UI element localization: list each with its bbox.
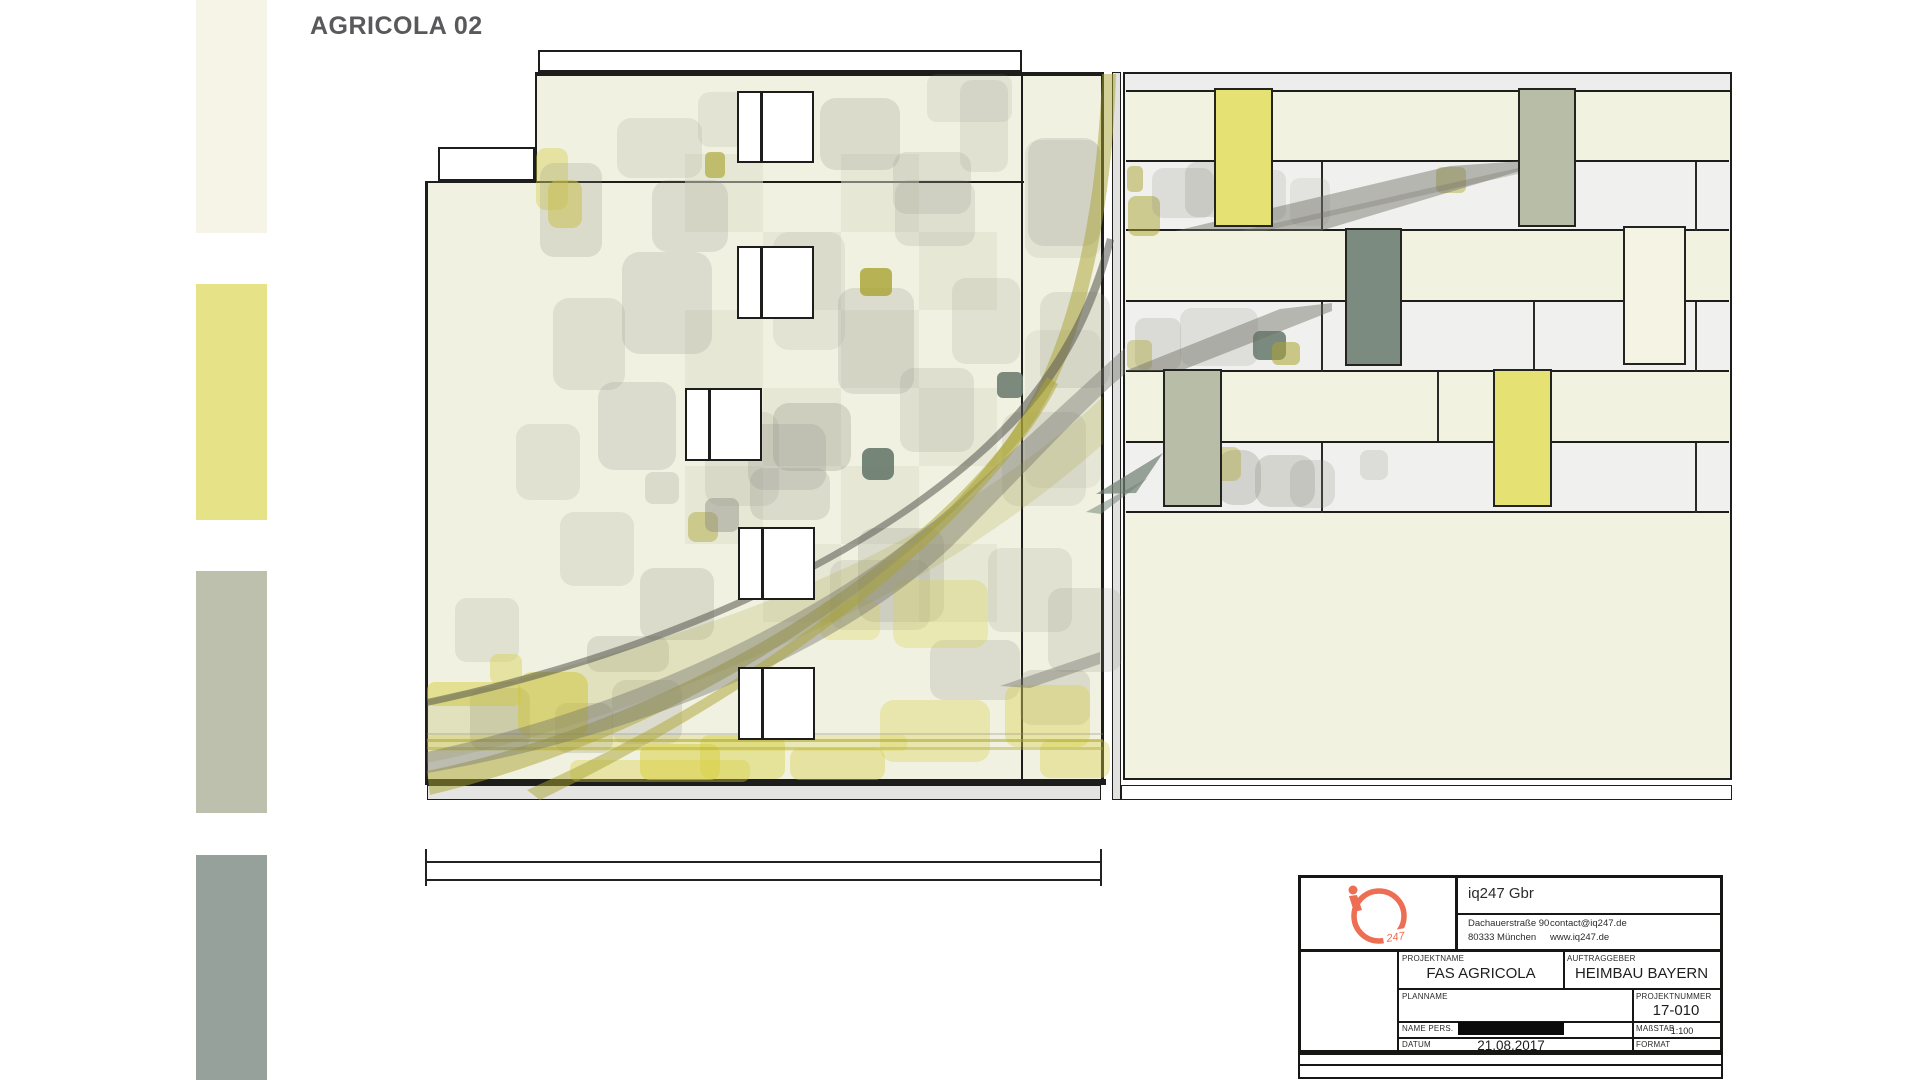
- iq247-logo: 247: [1303, 880, 1453, 946]
- art-patch: [1040, 740, 1110, 778]
- structure-rect: [1100, 849, 1102, 886]
- art-patch: [895, 180, 975, 246]
- art-patch: [652, 180, 728, 252]
- field-value-projektnummer: 17-010: [1632, 1002, 1720, 1019]
- facade-window: [737, 91, 814, 163]
- art-patch: [1290, 460, 1335, 508]
- art-patch: [427, 682, 521, 706]
- accent-board: [1623, 226, 1686, 365]
- art-patch: [893, 580, 988, 648]
- company-name: iq247 Gbr: [1468, 885, 1534, 902]
- divider: [1632, 990, 1634, 1050]
- window-mullion: [708, 390, 711, 459]
- structure-rect: [425, 849, 427, 886]
- art-patch: [587, 636, 669, 672]
- art-patch: [1360, 450, 1388, 480]
- structure-rect: [538, 50, 1022, 72]
- window-mullion: [761, 529, 764, 598]
- structure-rect: [1533, 302, 1535, 372]
- divider: [1455, 913, 1720, 915]
- field-label-format: FORMAT: [1636, 1040, 1670, 1049]
- redacted-name: [1458, 1022, 1564, 1035]
- accent-board: [1493, 369, 1552, 507]
- art-patch: [1048, 588, 1122, 672]
- structure-rect: [1101, 72, 1104, 779]
- structure-rect: [1695, 443, 1697, 513]
- window-mullion: [761, 669, 764, 738]
- art-patch: [645, 472, 679, 504]
- address-website: www.iq247.de: [1550, 932, 1609, 943]
- accent-board: [1518, 88, 1576, 227]
- structure-rect: [427, 785, 1101, 800]
- logo-247-text: 247: [1385, 930, 1407, 945]
- field-label-projektnummer: PROJEKTNUMMER: [1636, 992, 1712, 1001]
- art-patch: [570, 760, 750, 782]
- window-mullion: [760, 93, 763, 161]
- field-value-datum: 21.08.2017: [1397, 1038, 1625, 1053]
- structure-rect: [427, 879, 1102, 881]
- title-block-spare-row: [1298, 1064, 1723, 1079]
- art-patch: [1436, 167, 1466, 193]
- structure-rect: [438, 147, 535, 181]
- art-patch: [516, 424, 580, 500]
- art-patch: [455, 598, 519, 662]
- structure-rect: [427, 861, 1102, 863]
- structure-rect: [1121, 785, 1732, 800]
- accent-board: [1345, 228, 1402, 366]
- art-patch: [862, 448, 894, 480]
- field-value-auftraggeber: HEIMBAU BAYERN: [1563, 965, 1720, 982]
- art-patch: [705, 498, 739, 532]
- art-patch: [598, 382, 676, 470]
- art-patch: [617, 118, 702, 178]
- structure-rect: [1112, 72, 1121, 800]
- art-patch: [622, 252, 712, 354]
- facade-window: [738, 667, 815, 740]
- art-patch: [1127, 166, 1143, 192]
- address-street: Dachauerstraße 90: [1468, 918, 1549, 929]
- field-value-masstab: 1:100: [1667, 1026, 1697, 1036]
- art-patch: [640, 568, 714, 640]
- art-patch: [705, 152, 725, 178]
- structure-rect: [1695, 162, 1697, 231]
- art-patch: [750, 468, 830, 520]
- art-patch: [952, 278, 1020, 364]
- art-patch: [997, 372, 1023, 398]
- art-patch: [540, 163, 602, 257]
- structure-rect: [1695, 302, 1697, 372]
- art-patch: [820, 98, 900, 170]
- art-patch: [1005, 685, 1090, 747]
- field-label-projektname: PROJEKTNAME: [1402, 954, 1464, 963]
- field-label-planname: PLANNAME: [1402, 992, 1448, 1001]
- address-city: 80333 München: [1468, 932, 1536, 943]
- structure-rect: [1126, 511, 1729, 513]
- art-patch: [880, 700, 990, 762]
- facade-window: [738, 527, 815, 600]
- art-patch: [820, 600, 880, 640]
- accent-board: [1214, 88, 1273, 227]
- structure-rect: [1321, 302, 1323, 372]
- art-patch: [960, 80, 1008, 172]
- art-patch: [790, 748, 885, 780]
- art-patch: [900, 368, 974, 452]
- facade-window: [685, 388, 762, 461]
- divider: [1301, 949, 1720, 952]
- art-patch: [1272, 342, 1300, 365]
- structure-rect: [535, 72, 1103, 76]
- accent-board: [1163, 369, 1222, 507]
- art-patch: [860, 268, 892, 296]
- window-mullion: [760, 248, 763, 317]
- art-patch: [427, 747, 1103, 750]
- title-block: 247 iq247 Gbr Dachauerstraße 90 contact@…: [1298, 875, 1723, 1053]
- art-patch: [518, 672, 588, 738]
- facade-window: [737, 246, 814, 319]
- art-patch: [1025, 140, 1101, 258]
- divider: [1397, 988, 1720, 990]
- art-patch: [490, 654, 522, 684]
- art-patch: [1290, 178, 1330, 226]
- field-label-name-pers: NAME PERS.: [1402, 1024, 1453, 1033]
- art-patch: [1180, 308, 1258, 366]
- art-patch: [553, 298, 625, 390]
- field-value-projektname: FAS AGRICOLA: [1397, 965, 1565, 982]
- address-email: contact@iq247.de: [1550, 918, 1627, 929]
- art-patch: [560, 512, 634, 586]
- field-label-auftraggeber: AUFTRAGGEBER: [1567, 954, 1636, 963]
- art-patch: [1127, 340, 1152, 370]
- structure-rect: [1437, 372, 1439, 441]
- art-patch: [1025, 330, 1101, 488]
